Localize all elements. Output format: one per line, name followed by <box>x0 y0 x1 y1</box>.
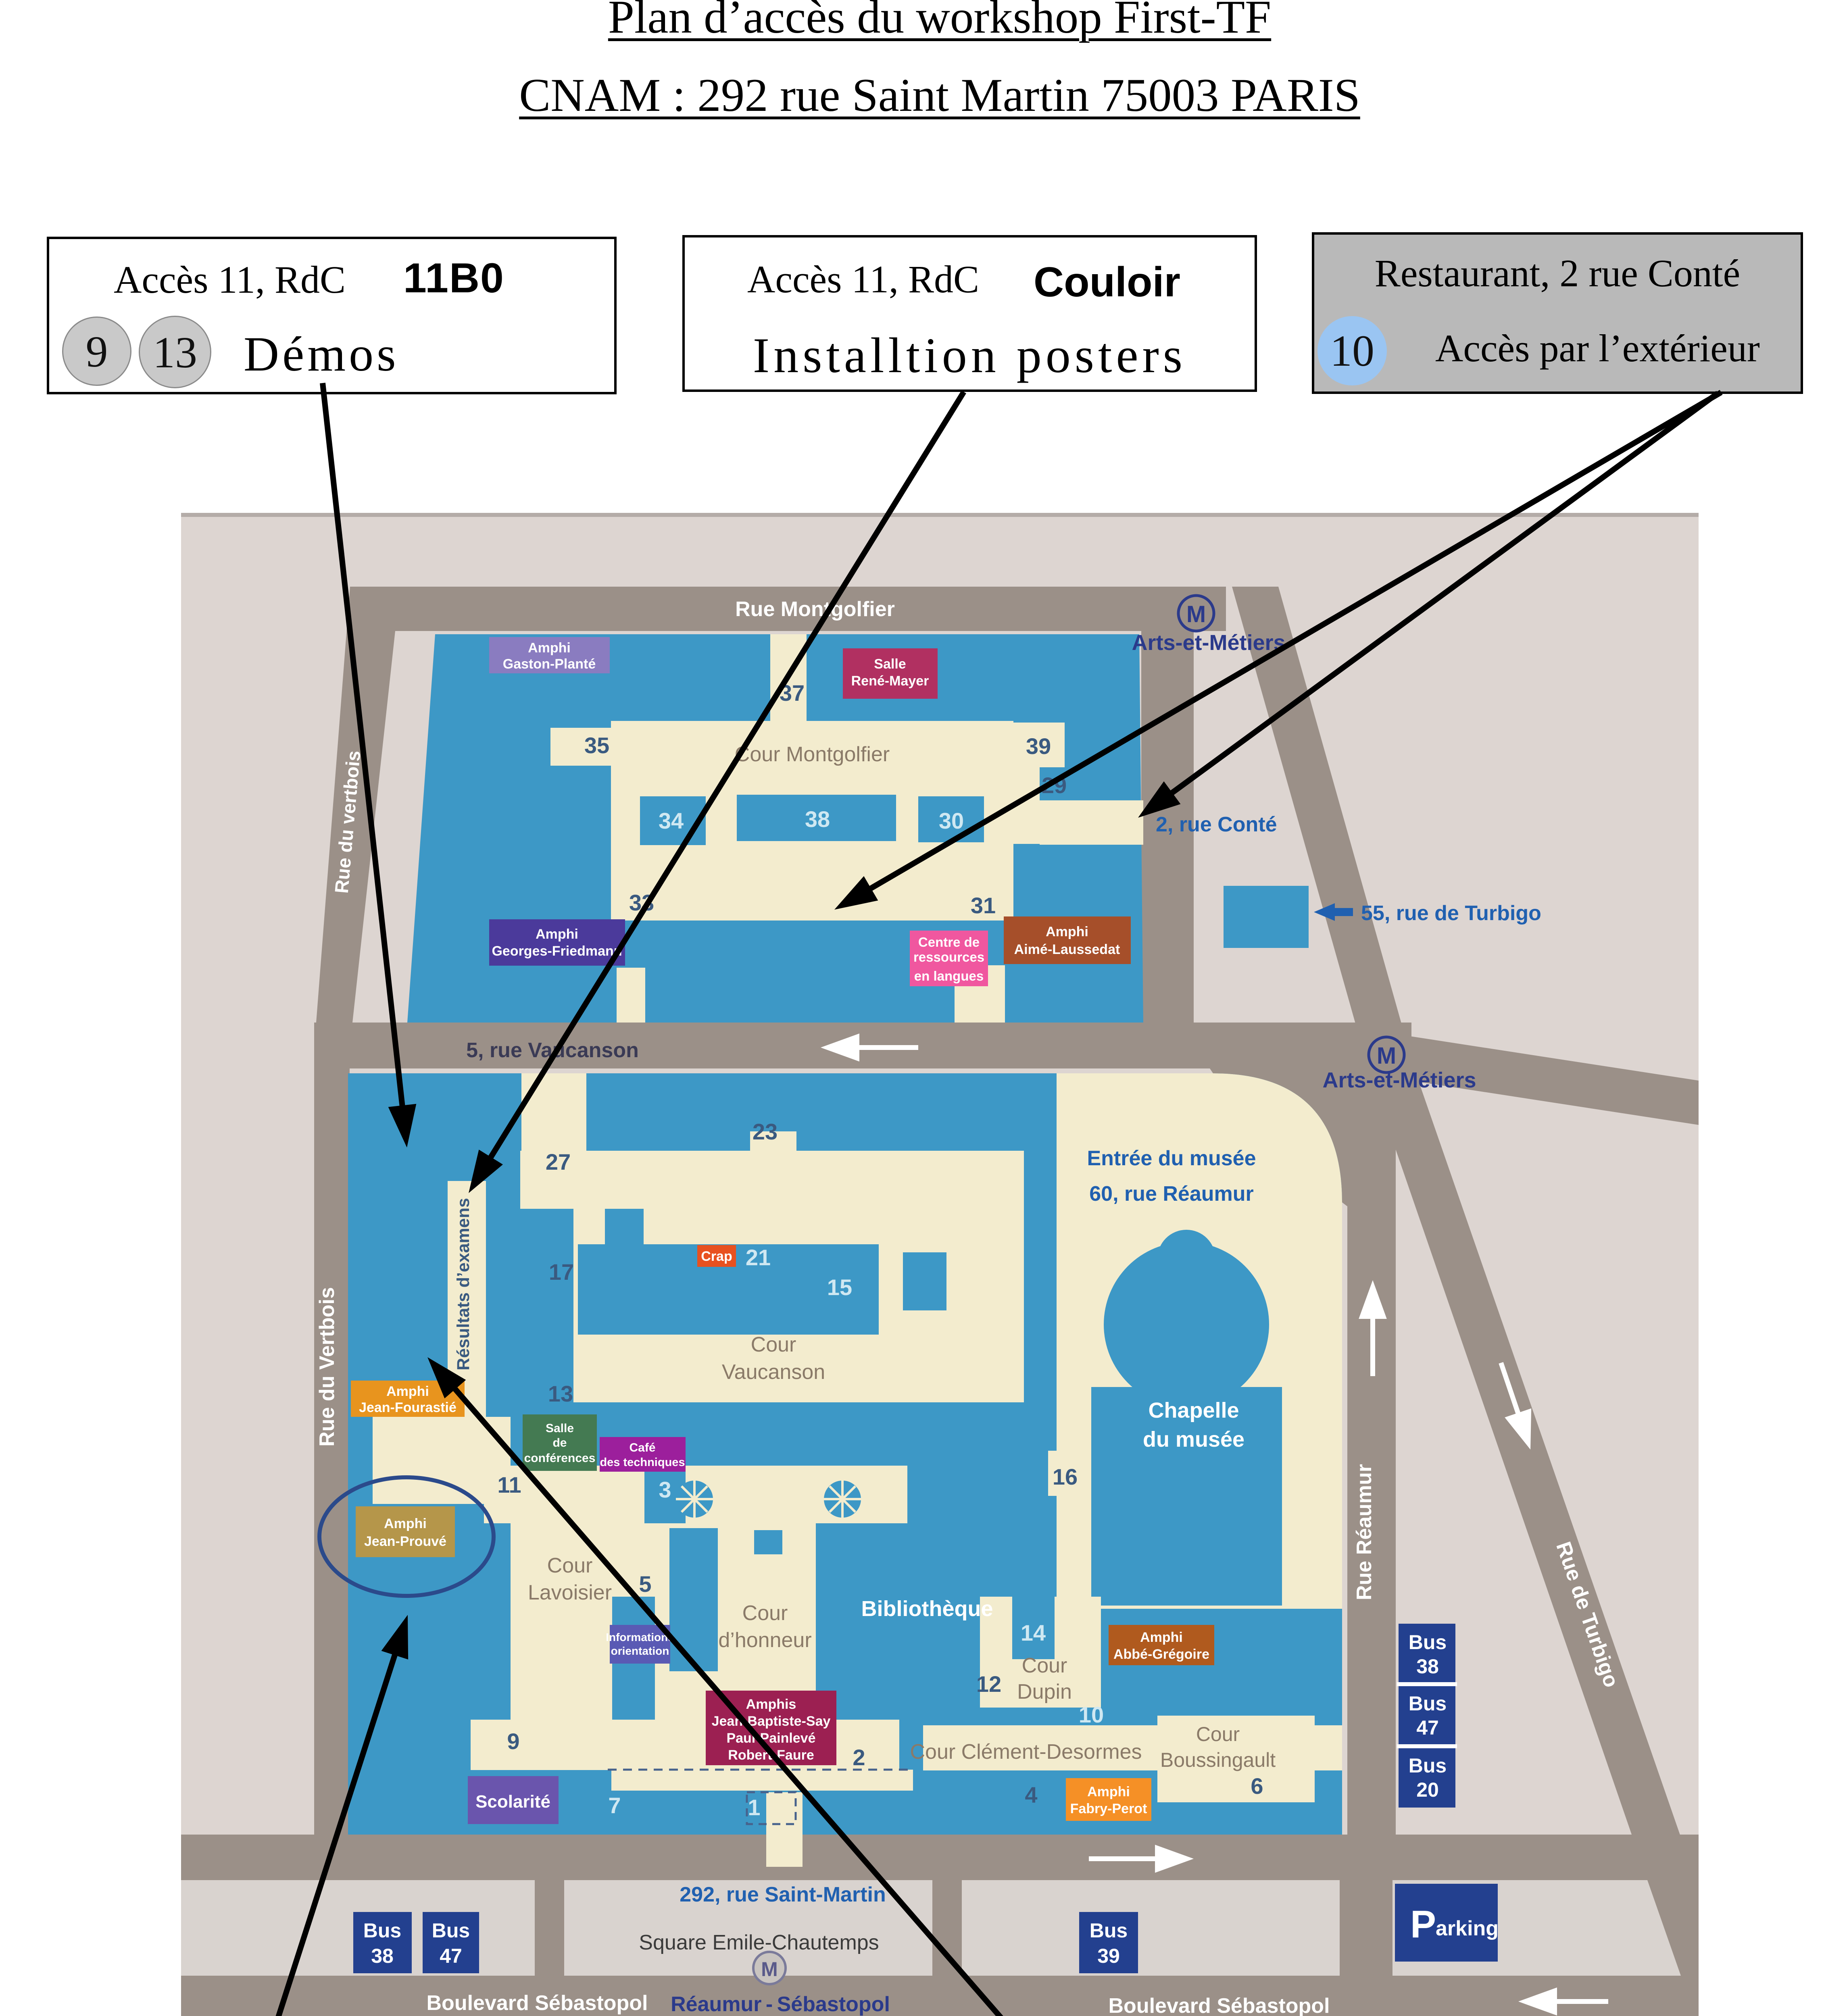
svg-text:1: 1 <box>748 1795 760 1820</box>
svg-text:Salle: Salle <box>546 1422 574 1435</box>
svg-text:Rue Réaumur: Rue Réaumur <box>1353 1464 1376 1600</box>
svg-text:Bus: Bus <box>1409 1692 1447 1715</box>
svg-text:Centre de: Centre de <box>918 935 980 950</box>
svg-text:Amphis: Amphis <box>746 1697 796 1712</box>
svg-text:Cour: Cour <box>742 1602 788 1625</box>
svg-text:Aimé-Laussedat: Aimé-Laussedat <box>1014 942 1120 957</box>
svg-text:Paul-Painlevé: Paul-Painlevé <box>726 1731 815 1746</box>
svg-text:Cour: Cour <box>1196 1723 1240 1745</box>
svg-text:Bus: Bus <box>1409 1631 1447 1654</box>
svg-text:arking: arking <box>1436 1917 1499 1940</box>
svg-text:en langues: en langues <box>914 968 984 983</box>
svg-text:Dupin: Dupin <box>1017 1680 1072 1704</box>
svg-text:Bus: Bus <box>363 1919 401 1942</box>
svg-text:10: 10 <box>1079 1702 1104 1727</box>
svg-text:Jean-Prouvé: Jean-Prouvé <box>364 1534 446 1549</box>
svg-text:Boussingault: Boussingault <box>1160 1749 1276 1771</box>
svg-text:des techniques: des techniques <box>600 1456 685 1469</box>
svg-text:9: 9 <box>507 1729 519 1754</box>
svg-text:Entrée du musée: Entrée du musée <box>1087 1147 1256 1170</box>
svg-text:55, rue de Turbigo: 55, rue de Turbigo <box>1361 902 1541 925</box>
svg-text:34: 34 <box>659 808 684 833</box>
svg-text:M: M <box>1377 1043 1396 1069</box>
svg-text:13: 13 <box>548 1381 573 1406</box>
svg-text:Bus: Bus <box>432 1919 470 1942</box>
svg-text:du musée: du musée <box>1143 1427 1244 1452</box>
svg-text:Vaucanson: Vaucanson <box>722 1360 825 1384</box>
svg-text:Gaston-Planté: Gaston-Planté <box>503 656 596 672</box>
svg-text:21: 21 <box>746 1245 771 1270</box>
svg-text:39: 39 <box>1026 733 1051 759</box>
svg-text:35: 35 <box>584 733 609 758</box>
svg-text:Fabry-Perot: Fabry-Perot <box>1070 1801 1147 1816</box>
svg-text:d’honneur: d’honneur <box>718 1629 811 1652</box>
svg-text:23: 23 <box>753 1119 778 1144</box>
svg-text:Amphi: Amphi <box>386 1384 429 1399</box>
svg-text:2: 2 <box>853 1745 865 1770</box>
svg-text:20: 20 <box>1416 1779 1439 1801</box>
svg-text:Amphi: Amphi <box>1087 1784 1130 1799</box>
svg-text:60, rue Réaumur: 60, rue Réaumur <box>1089 1182 1254 1206</box>
svg-text:Cour Clément-Desormes: Cour Clément-Desormes <box>910 1740 1142 1764</box>
svg-text:Réaumur - Sébastopol: Réaumur - Sébastopol <box>671 1993 890 2016</box>
svg-text:Café: Café <box>629 1441 655 1454</box>
svg-text:12: 12 <box>976 1671 1001 1697</box>
svg-text:5: 5 <box>639 1571 651 1597</box>
svg-text:Lavoisier: Lavoisier <box>528 1581 612 1604</box>
svg-text:M: M <box>761 1958 778 1981</box>
svg-text:47: 47 <box>1416 1716 1439 1739</box>
svg-text:6: 6 <box>1251 1773 1263 1799</box>
svg-text:Amphi: Amphi <box>384 1516 427 1531</box>
svg-text:Amphi: Amphi <box>1046 924 1088 939</box>
svg-text:ressources: ressources <box>913 950 984 964</box>
svg-text:Résultats d’examens: Résultats d’examens <box>454 1198 473 1370</box>
svg-text:39: 39 <box>1097 1945 1120 1967</box>
svg-text:Jean-Baptiste-Say: Jean-Baptiste-Say <box>712 1714 831 1729</box>
svg-text:15: 15 <box>827 1275 852 1300</box>
svg-text:Boulevard Sébastopol: Boulevard Sébastopol <box>427 1991 648 2015</box>
svg-text:Amphi: Amphi <box>536 927 578 942</box>
svg-text:Abbé-Grégoire: Abbé-Grégoire <box>1113 1647 1209 1662</box>
svg-text:Square Emile-Chautemps: Square Emile-Chautemps <box>639 1931 879 1954</box>
svg-text:Scolarité: Scolarité <box>475 1792 550 1812</box>
svg-text:292, rue Saint-Martin: 292, rue Saint-Martin <box>680 1883 886 1906</box>
svg-text:orientation: orientation <box>611 1645 669 1657</box>
svg-text:Arts-et-Métiers: Arts-et-Métiers <box>1322 1068 1476 1092</box>
svg-text:Chapelle: Chapelle <box>1148 1398 1239 1422</box>
svg-text:31: 31 <box>971 893 996 918</box>
svg-text:Jean-Fourastié: Jean-Fourastié <box>359 1400 457 1415</box>
svg-text:Cour: Cour <box>1022 1654 1067 1677</box>
svg-text:Arts-et-Métiers: Arts-et-Métiers <box>1132 631 1285 655</box>
svg-text:Bus: Bus <box>1090 1919 1128 1942</box>
svg-text:14: 14 <box>1021 1620 1046 1645</box>
svg-text:Cour: Cour <box>547 1554 593 1577</box>
svg-text:11: 11 <box>497 1472 521 1497</box>
svg-text:30: 30 <box>939 808 964 833</box>
svg-text:Rue Montgolfier: Rue Montgolfier <box>735 598 895 621</box>
svg-text:38: 38 <box>1416 1655 1439 1678</box>
svg-text:Salle: Salle <box>874 656 906 672</box>
svg-text:René-Mayer: René-Mayer <box>851 673 929 689</box>
svg-text:2, rue Conté: 2, rue Conté <box>1156 813 1277 836</box>
svg-text:27: 27 <box>546 1149 571 1175</box>
svg-text:38: 38 <box>805 806 830 832</box>
svg-text:16: 16 <box>1053 1464 1078 1489</box>
svg-text:M: M <box>1186 601 1206 627</box>
svg-text:Bibliothèque: Bibliothèque <box>861 1597 993 1621</box>
svg-text:Bus: Bus <box>1409 1754 1447 1777</box>
svg-text:conférences: conférences <box>524 1452 596 1465</box>
svg-text:3: 3 <box>659 1477 671 1502</box>
svg-text:4: 4 <box>1025 1782 1037 1808</box>
svg-text:Rue du Vertbois: Rue du Vertbois <box>315 1287 339 1447</box>
svg-text:de: de <box>552 1436 567 1450</box>
svg-text:Cour Montgolfier: Cour Montgolfier <box>735 743 890 766</box>
svg-text:Boulevard Sébastopol: Boulevard Sébastopol <box>1109 1994 1330 2016</box>
svg-text:Cour: Cour <box>751 1333 796 1356</box>
svg-text:Amphi: Amphi <box>1140 1630 1183 1645</box>
svg-text:Amphi: Amphi <box>528 640 571 656</box>
svg-text:7: 7 <box>608 1793 621 1818</box>
svg-text:38: 38 <box>371 1945 394 1967</box>
svg-text:Crap: Crap <box>701 1249 732 1264</box>
svg-text:Georges-Friedmann: Georges-Friedmann <box>492 943 622 959</box>
svg-text:47: 47 <box>440 1945 462 1967</box>
svg-text:17: 17 <box>549 1259 574 1285</box>
svg-text:P: P <box>1410 1903 1436 1946</box>
